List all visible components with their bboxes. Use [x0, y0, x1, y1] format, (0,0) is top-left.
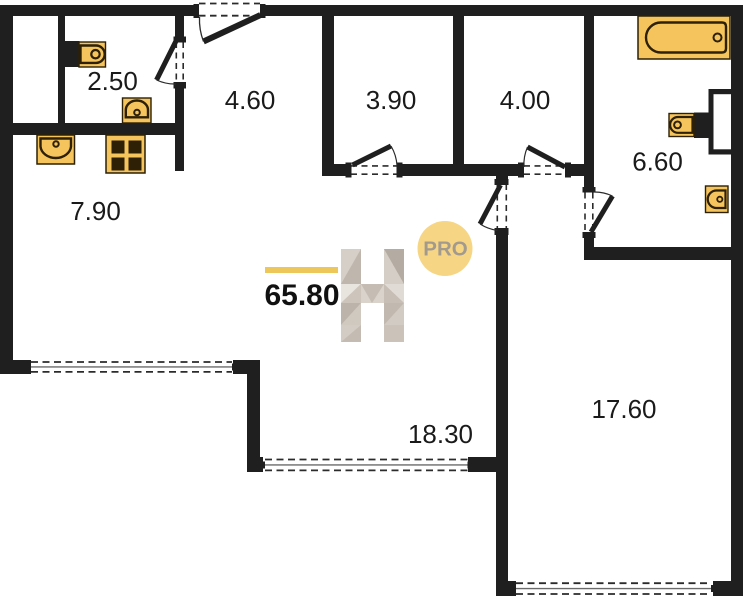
svg-text:17.60: 17.60: [591, 394, 656, 424]
svg-text:7.90: 7.90: [70, 196, 121, 226]
svg-text:18.30: 18.30: [408, 419, 473, 449]
svg-text:4.60: 4.60: [225, 85, 276, 115]
svg-text:4.00: 4.00: [500, 85, 551, 115]
svg-text:6.60: 6.60: [632, 147, 683, 177]
svg-text:2.50: 2.50: [87, 66, 138, 96]
svg-text:65.80: 65.80: [264, 279, 339, 312]
svg-text:PRO: PRO: [423, 238, 467, 261]
svg-text:3.90: 3.90: [366, 85, 417, 115]
